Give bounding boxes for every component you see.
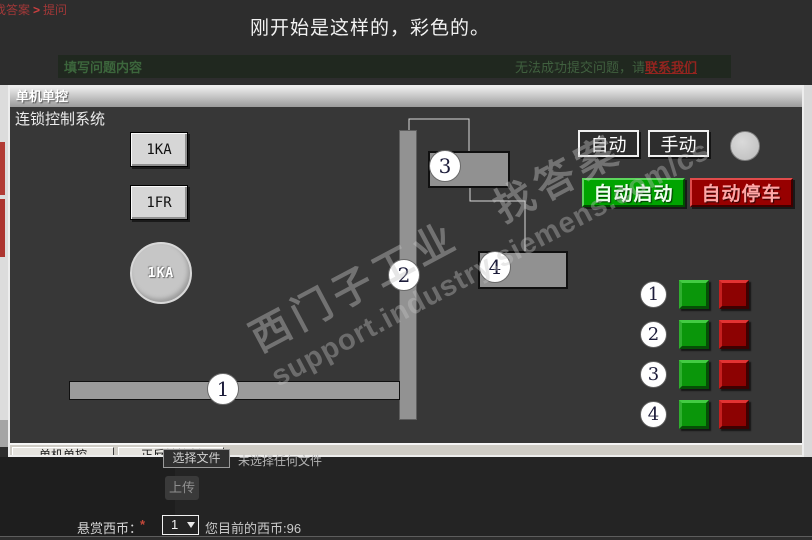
row-4-badge: 4 xyxy=(640,401,667,428)
coin-amount-value: 1 xyxy=(171,517,178,532)
auto-mode-button[interactable]: 自动 xyxy=(578,130,639,157)
conveyor-4-badge: 4 xyxy=(479,251,511,283)
manual-mode-button[interactable]: 手动 xyxy=(648,130,709,157)
mode-lamp xyxy=(730,131,760,161)
row-3-badge: 3 xyxy=(640,361,667,388)
conveyor-1-badge: 1 xyxy=(207,373,239,405)
row-3-red-button[interactable] xyxy=(719,360,749,389)
hmi-window-title: 单机单控 xyxy=(10,87,802,107)
no-file-chosen-label: 未选择任何文件 xyxy=(238,452,322,469)
post-title: 刚开始是这样的，彩色的。 xyxy=(0,13,740,40)
contact-us-link[interactable]: 联系我们 xyxy=(645,60,697,75)
conveyor-3-badge: 3 xyxy=(429,150,461,182)
form-header-bar: 填写问题内容 无法成功提交问题，请联系我们 xyxy=(58,55,731,78)
submit-warning: 无法成功提交问题，请联系我们 xyxy=(515,57,697,76)
choose-file-button[interactable]: 选择文件 xyxy=(163,449,230,468)
tab-single-machine[interactable]: 单机单控 xyxy=(12,447,114,455)
right-page-edge xyxy=(804,85,812,457)
row-4-green-button[interactable] xyxy=(679,400,709,429)
row-2-red-button[interactable] xyxy=(719,320,749,349)
left-red-banner-bottom xyxy=(0,199,5,257)
conveyor-2-badge: 2 xyxy=(388,259,420,291)
row-2-badge: 2 xyxy=(640,321,667,348)
row-2-green-button[interactable] xyxy=(679,320,709,349)
coin-amount-select[interactable]: 1 xyxy=(162,515,199,535)
screenshot-root: 找答案>提问 刚开始是这样的，彩色的。 填写问题内容 无法成功提交问题，请联系我… xyxy=(0,0,812,540)
row-1-badge: 1 xyxy=(640,281,667,308)
row-1-green-button[interactable] xyxy=(679,280,709,309)
auto-start-button[interactable]: 自动启动 xyxy=(582,178,685,207)
row-3-green-button[interactable] xyxy=(679,360,709,389)
auto-stop-button[interactable]: 自动停车 xyxy=(690,178,793,207)
form-header-label: 填写问题内容 xyxy=(64,57,142,76)
left-gray-block xyxy=(0,420,8,447)
chevron-down-icon xyxy=(187,522,195,528)
row-1-red-button[interactable] xyxy=(719,280,749,309)
left-page-edge xyxy=(0,85,8,447)
left-red-banner-top xyxy=(0,142,5,195)
hmi-screen: 连锁控制系统 1KA 1FR 1KA 1 2 3 4 自动 手动 自动启动 xyxy=(10,107,802,445)
upload-button[interactable]: 上传 xyxy=(165,476,199,500)
row-4-red-button[interactable] xyxy=(719,400,749,429)
required-asterisk: * xyxy=(140,517,145,532)
reward-coin-label: 悬赏西币： xyxy=(77,518,142,537)
hmi-tabstrip: 单机单控 正反转控制 xyxy=(10,445,802,455)
coin-balance-label: 您目前的西币:96 xyxy=(205,518,301,537)
attached-hmi-image[interactable]: 单机单控 连锁控制系统 1KA 1FR 1KA 1 2 3 4 自动 手动 xyxy=(8,85,804,457)
